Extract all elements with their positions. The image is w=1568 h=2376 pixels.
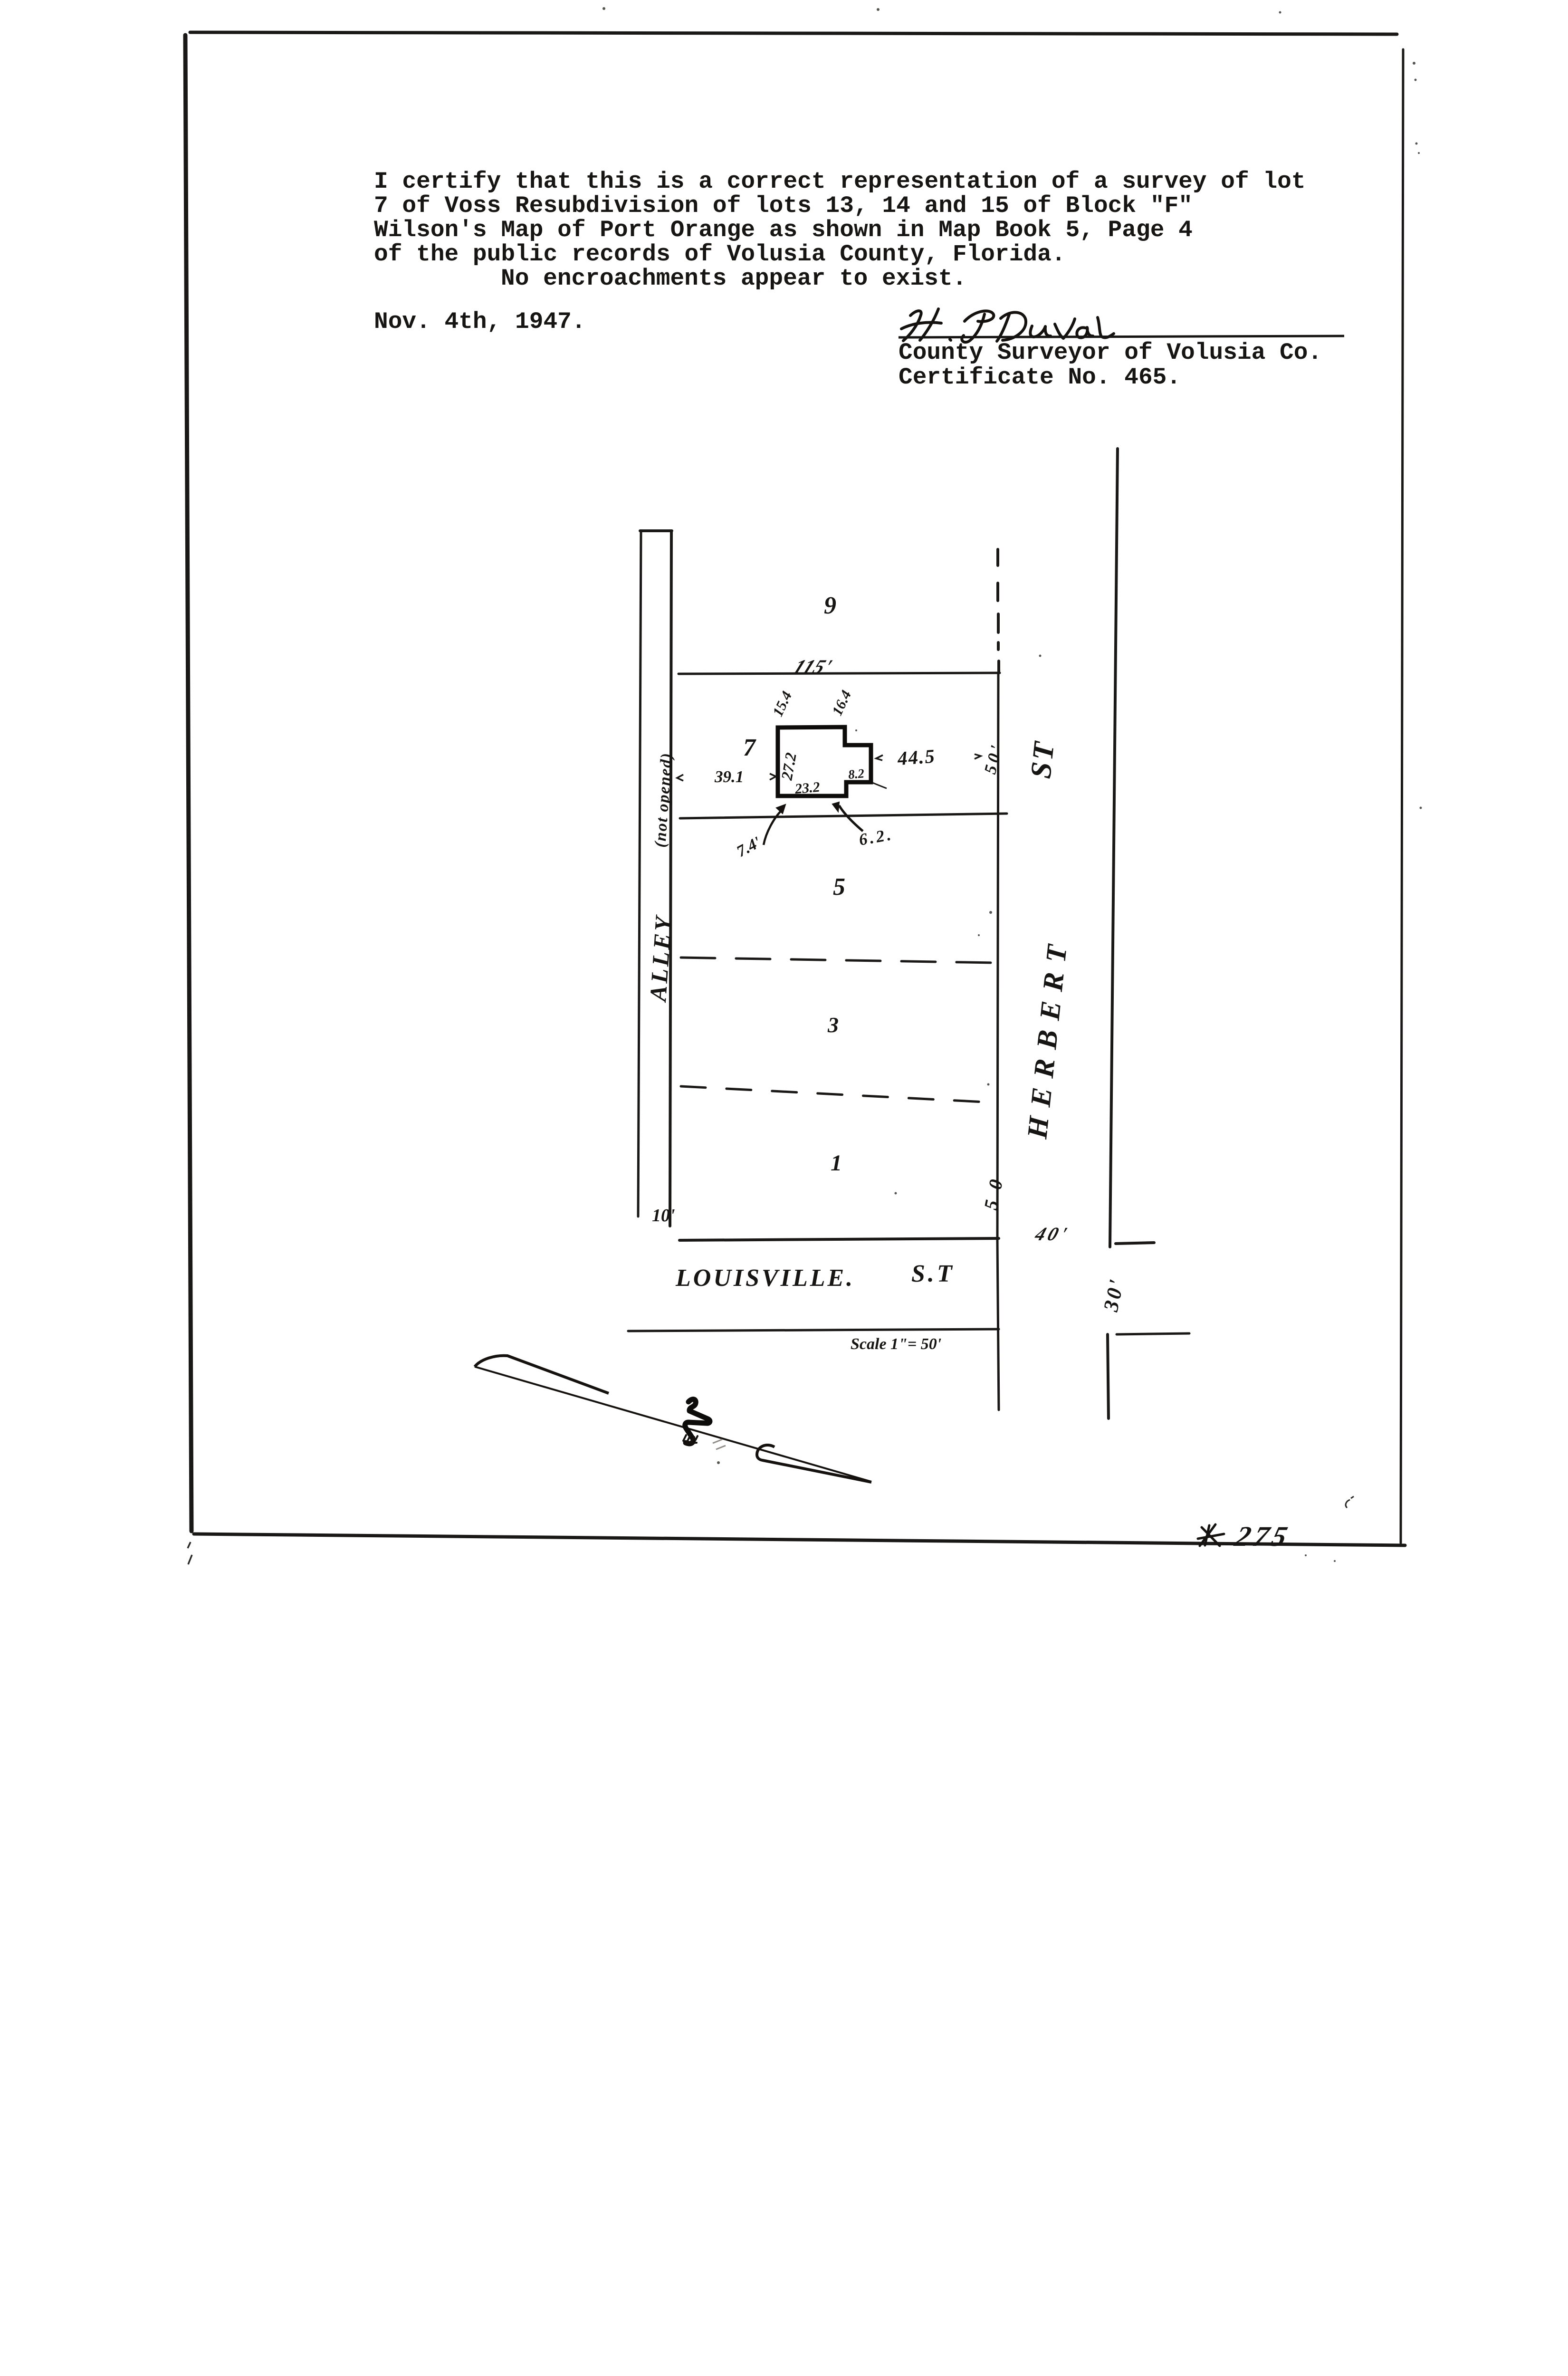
svg-text:7.4': 7.4' (734, 834, 764, 861)
svg-text:275: 275 (1231, 1521, 1294, 1552)
svg-text:15.4: 15.4 (769, 689, 795, 719)
svg-text:50': 50' (980, 740, 1007, 776)
svg-text:1: 1 (831, 1150, 842, 1176)
svg-text:6.2.: 6.2. (858, 825, 895, 849)
svg-text:5: 5 (833, 873, 845, 901)
svg-text:County Surveyor of Volusia Co.: County Surveyor of Volusia Co. (899, 339, 1322, 366)
svg-text:23.2: 23.2 (794, 779, 821, 797)
svg-text:Certificate No. 465.: Certificate No. 465. (899, 364, 1181, 391)
svg-text:ALLEY: ALLEY (644, 913, 677, 1004)
svg-text:No encroachments appear to exi: No encroachments appear to exist. (501, 265, 966, 292)
svg-text:44.5: 44.5 (896, 745, 936, 770)
svg-text:ST: ST (1024, 738, 1061, 780)
svg-text:I certify that this is a corre: I certify that this is a correct represe… (374, 168, 1306, 195)
svg-text:HERBERT: HERBERT (1021, 933, 1074, 1140)
svg-text:9: 9 (824, 592, 836, 619)
svg-text:Nov. 4th, 1947.: Nov. 4th, 1947. (374, 308, 586, 335)
svg-text:LOUISVILLE.: LOUISVILLE. (675, 1265, 855, 1292)
svg-text:of the public records of Volus: of the public records of Volusia County,… (374, 241, 1066, 268)
svg-text:8.2: 8.2 (848, 766, 865, 782)
svg-text:Wilson's Map of Port Orange as: Wilson's Map of Port Orange as shown in … (374, 217, 1193, 243)
svg-text:27.2: 27.2 (778, 751, 800, 782)
svg-text:7 of Voss Resubdivision of lot: 7 of Voss Resubdivision of lots 13, 14 a… (374, 192, 1193, 219)
svg-text:10': 10' (652, 1206, 675, 1226)
svg-text:7: 7 (743, 734, 756, 761)
svg-text:16.4: 16.4 (829, 688, 855, 718)
svg-text:S.T: S.T (911, 1260, 955, 1287)
svg-text:3: 3 (827, 1013, 839, 1037)
svg-text:50: 50 (980, 1166, 1009, 1211)
svg-text:40': 40' (1032, 1223, 1072, 1245)
svg-text:30': 30' (1099, 1275, 1129, 1314)
svg-text:Scale 1"= 50': Scale 1"= 50' (851, 1335, 941, 1353)
svg-text:39.1: 39.1 (714, 767, 744, 786)
